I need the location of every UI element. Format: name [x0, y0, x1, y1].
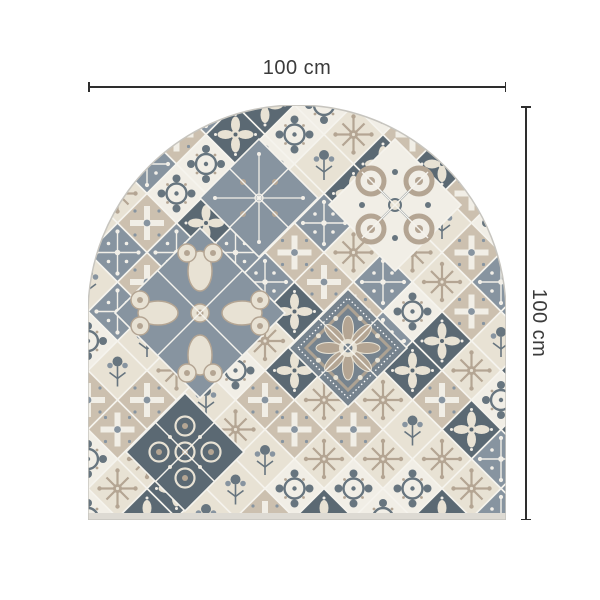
height-dimension-label: 100 cm — [527, 288, 551, 358]
height-dimension-tick-top — [521, 106, 531, 108]
height-dimension-tick-bottom — [521, 519, 531, 521]
width-dimension-line — [88, 86, 506, 88]
width-dimension-label: 100 cm — [88, 57, 506, 80]
width-dimension-tick-right — [505, 82, 507, 92]
arched-tile-mat — [88, 105, 506, 520]
width-dimension-tick-left — [88, 82, 90, 92]
tile-mat-graphic — [88, 105, 506, 520]
height-dimension-line — [525, 106, 527, 520]
product-dimension-diagram: 100 cm 100 cm — [0, 0, 600, 600]
